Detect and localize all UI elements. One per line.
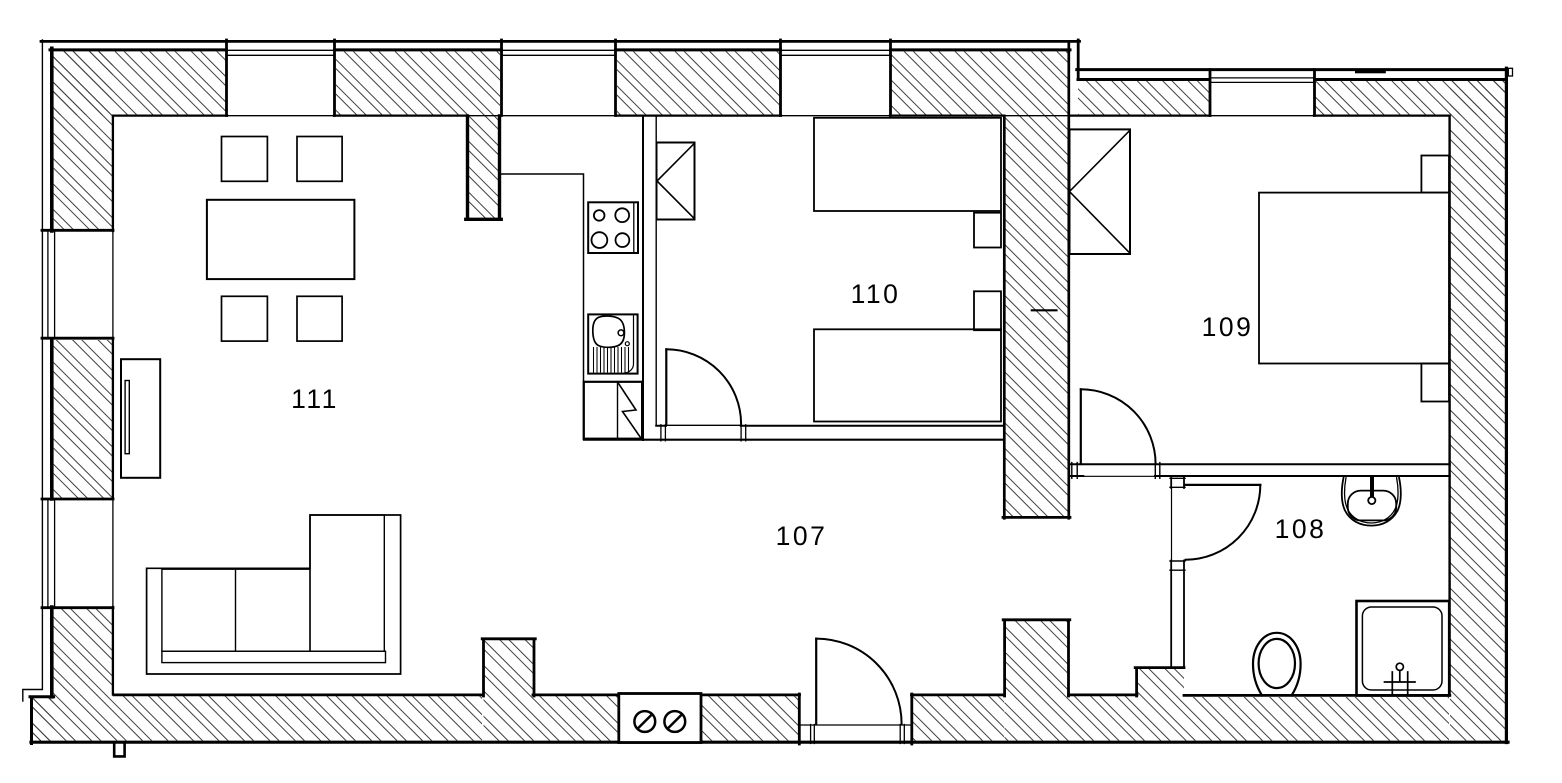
svg-text:111: 111: [291, 384, 339, 414]
svg-text:109: 109: [1202, 312, 1254, 342]
svg-text:110: 110: [851, 279, 901, 309]
svg-text:108: 108: [1275, 514, 1327, 544]
svg-text:107: 107: [776, 521, 828, 551]
